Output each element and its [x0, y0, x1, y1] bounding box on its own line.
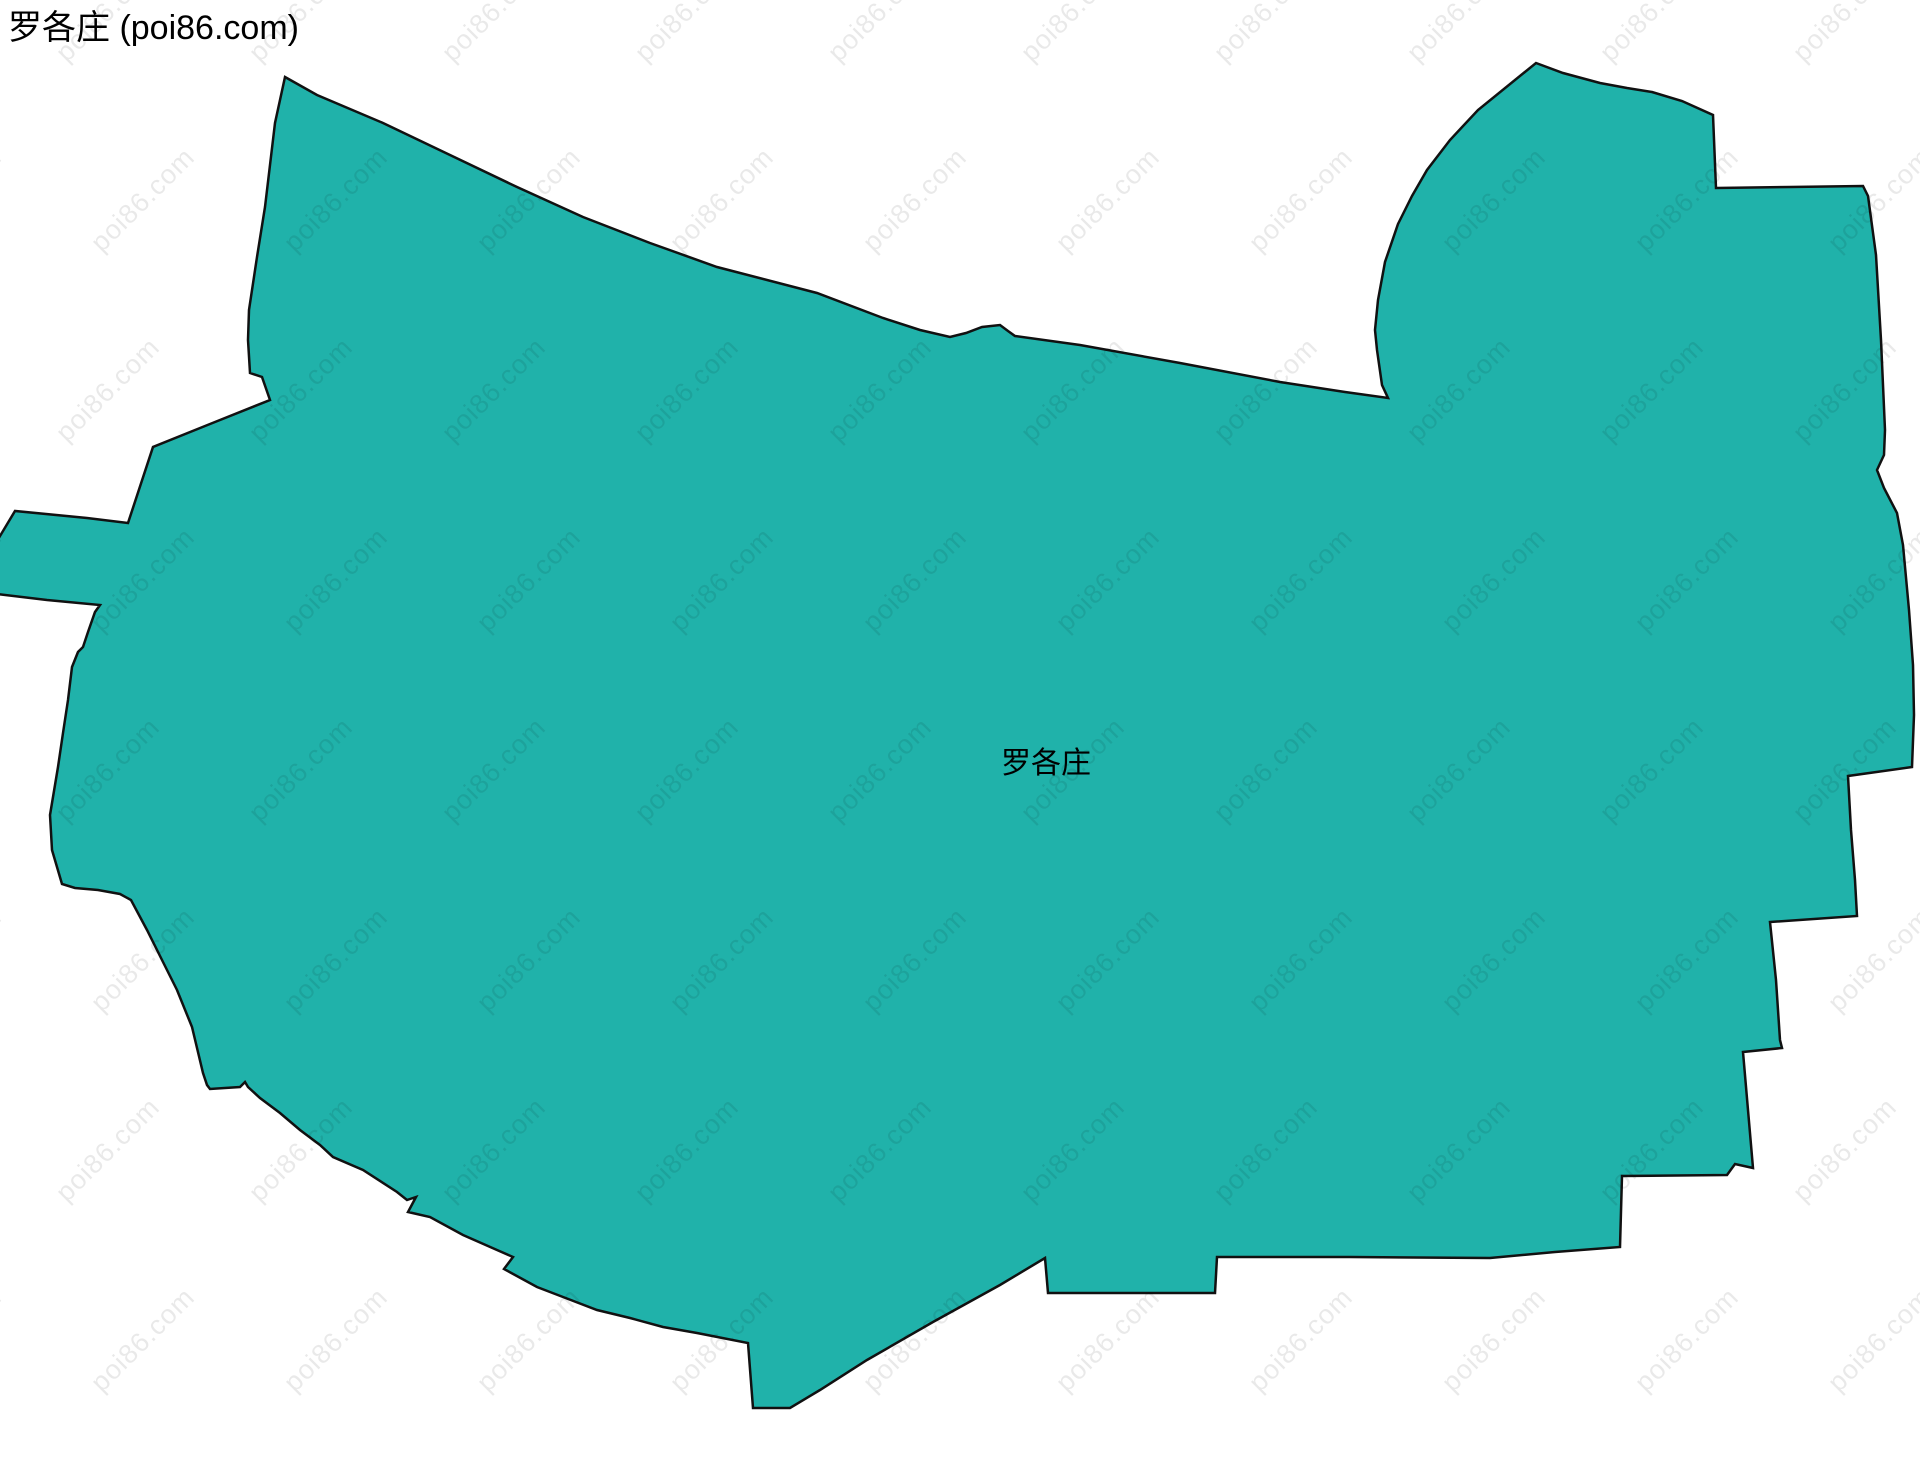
region-label: 罗各庄	[1001, 738, 1091, 782]
page-title: 罗各庄 (poi86.com)	[8, 8, 299, 49]
region-polygon	[0, 63, 1914, 1408]
map-page: { "page": { "width": 1920, "height": 147…	[0, 0, 1920, 1474]
map-canvas	[0, 0, 1920, 1474]
